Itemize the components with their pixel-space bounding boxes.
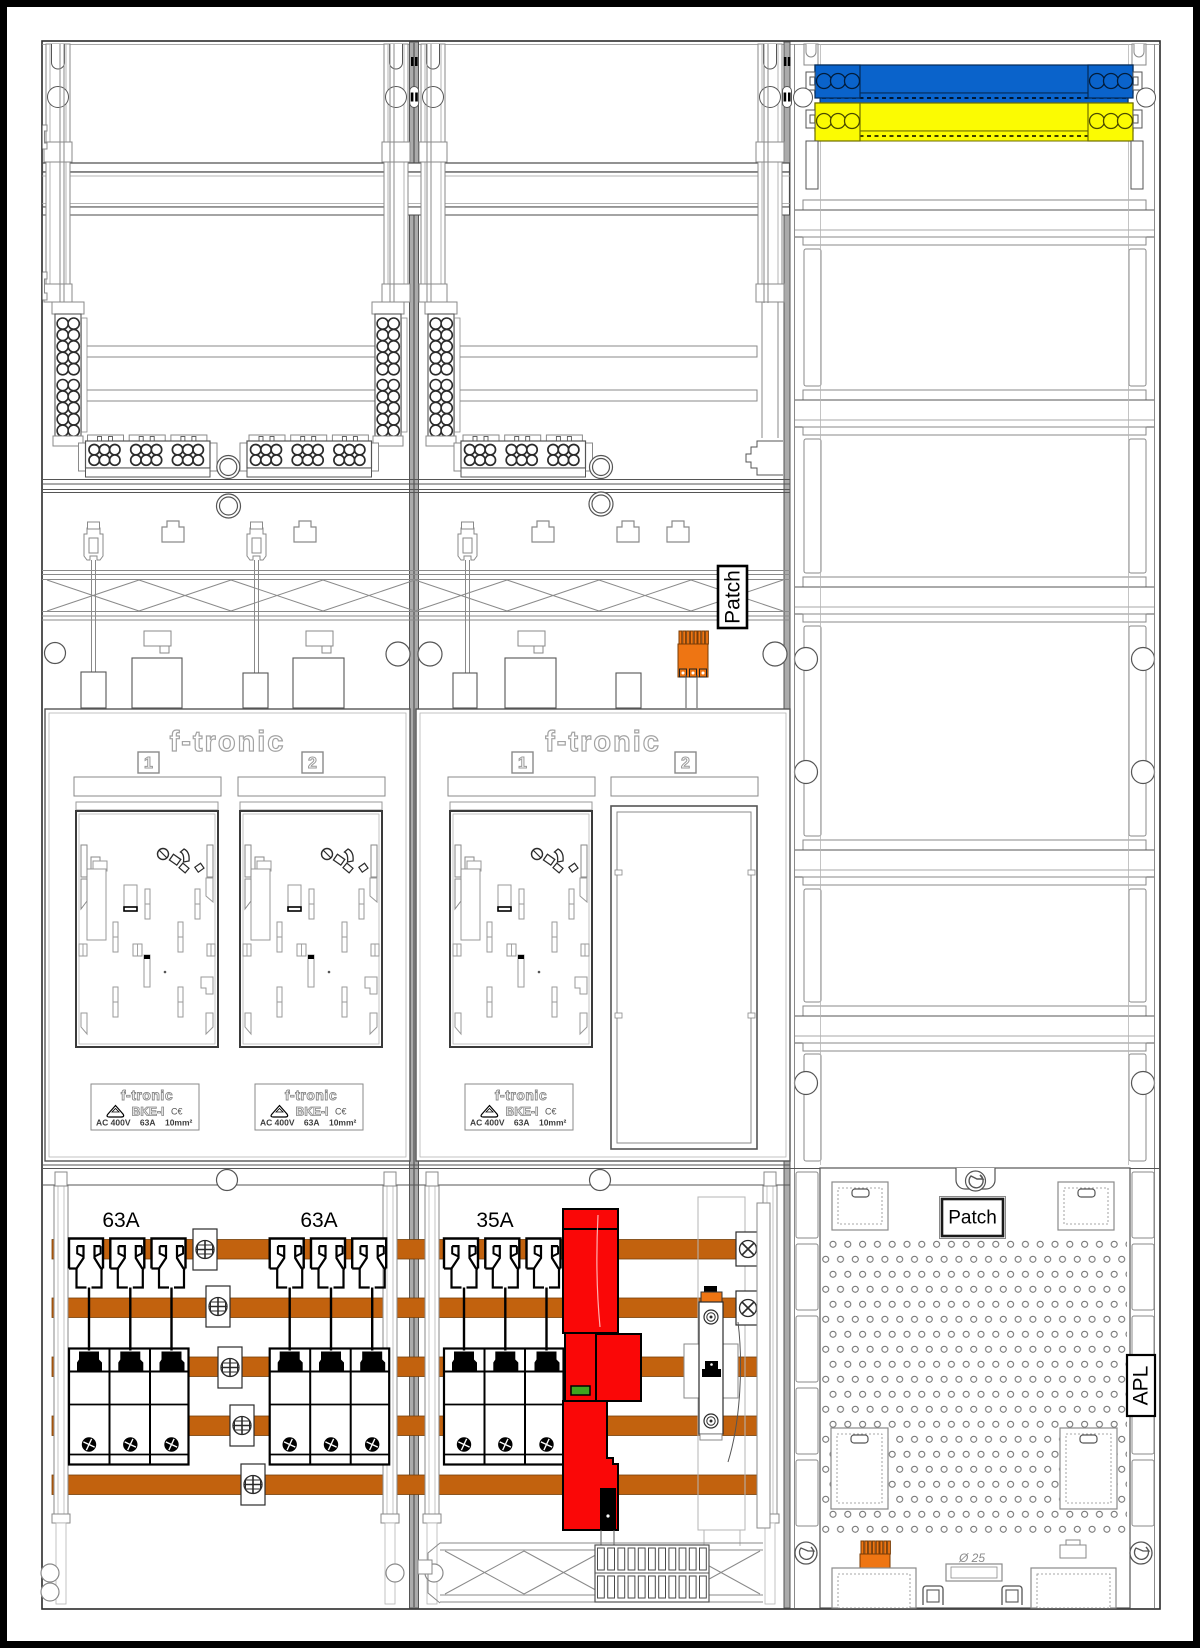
- svg-text:1: 1: [144, 755, 153, 772]
- svg-text:Patch: Patch: [948, 1208, 997, 1229]
- svg-text:f-tronic: f-tronic: [545, 726, 661, 758]
- svg-text:Ø 25: Ø 25: [958, 1551, 985, 1565]
- svg-text:APL: APL: [1130, 1366, 1153, 1406]
- svg-text:f-tronic: f-tronic: [170, 726, 286, 758]
- svg-text:63A: 63A: [102, 1209, 139, 1232]
- svg-text:Patch: Patch: [722, 570, 745, 624]
- svg-text:2: 2: [308, 755, 317, 772]
- svg-text:63A: 63A: [300, 1209, 337, 1232]
- svg-text:1: 1: [518, 755, 527, 772]
- svg-text:2: 2: [681, 755, 690, 772]
- svg-text:35A: 35A: [476, 1209, 513, 1232]
